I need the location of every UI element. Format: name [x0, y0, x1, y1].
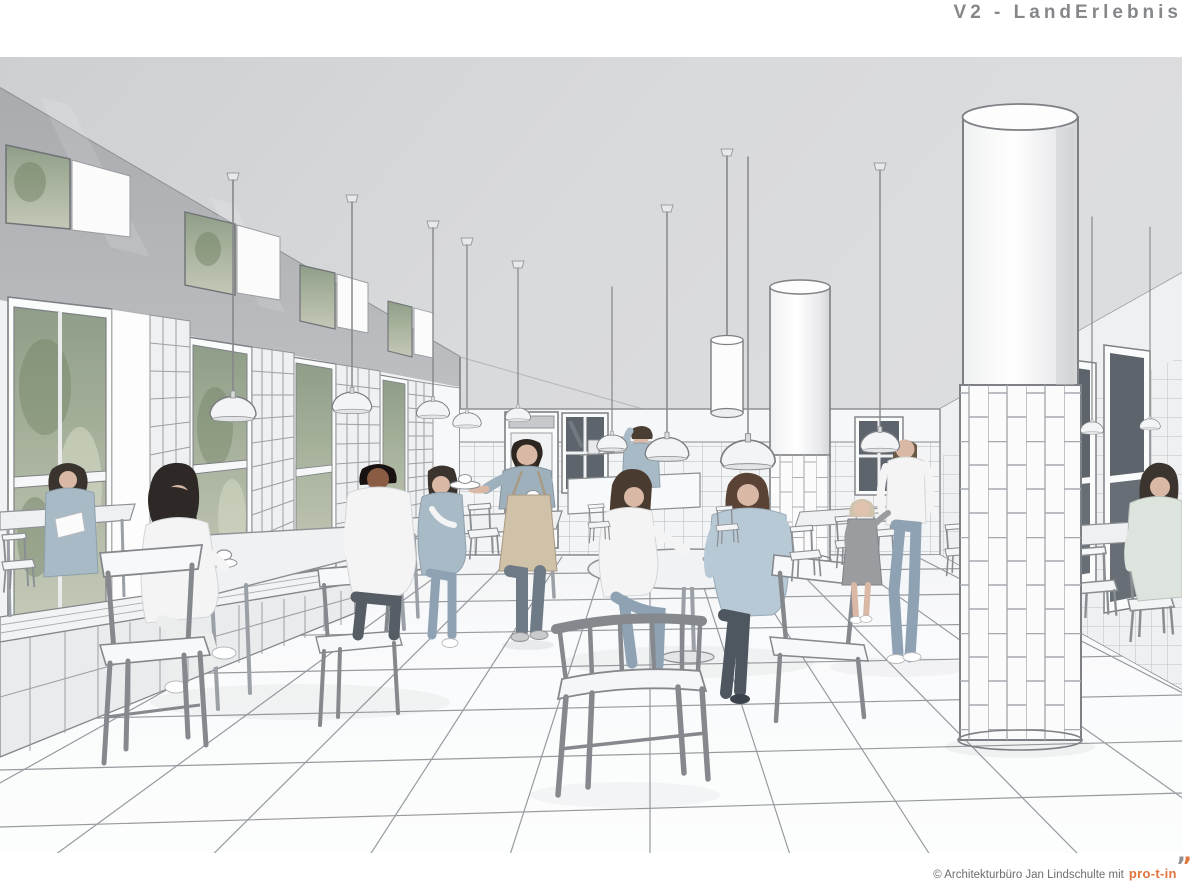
- logo-quote-mark: ’: [1183, 852, 1192, 880]
- architectural-rendering: [0, 57, 1182, 853]
- protin-logo-text: pro-t-in: [1129, 866, 1177, 881]
- column-right: [958, 104, 1082, 750]
- copyright-text: © Architekturbüro Jan Lindschulte mit: [933, 869, 1124, 881]
- presentation-page: V2 - LandErlebnis: [0, 0, 1200, 889]
- cafeteria-scene: [0, 57, 1182, 853]
- page-title: V2 - LandErlebnis: [954, 2, 1182, 24]
- credit-line: © Architekturbüro Jan Lindschulte mit pr…: [933, 866, 1192, 881]
